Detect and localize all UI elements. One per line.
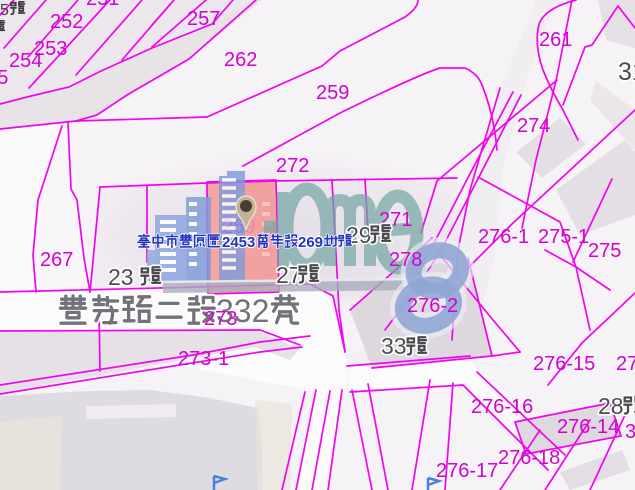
- svg-text:267: 267: [40, 249, 73, 271]
- svg-text:269: 269: [298, 234, 323, 251]
- svg-text:5: 5: [0, 2, 9, 19]
- svg-text:251: 251: [86, 0, 119, 10]
- svg-text:31: 31: [618, 58, 635, 86]
- svg-text:261: 261: [539, 29, 572, 51]
- svg-text:252: 252: [50, 11, 83, 33]
- svg-text:273-1: 273-1: [178, 348, 229, 370]
- svg-text:2453: 2453: [222, 234, 255, 251]
- svg-text:28: 28: [598, 393, 624, 419]
- svg-text:276-14: 276-14: [557, 416, 619, 438]
- svg-text:276-18: 276-18: [498, 447, 560, 469]
- svg-text:259: 259: [316, 82, 349, 104]
- svg-text:255: 255: [0, 67, 8, 89]
- svg-text:276-13: 276-13: [616, 353, 635, 375]
- svg-text:33: 33: [381, 333, 407, 359]
- svg-text:276-1: 276-1: [478, 226, 529, 248]
- svg-text:273: 273: [204, 308, 237, 330]
- svg-text:23: 23: [108, 264, 134, 290]
- svg-text:275-1: 275-1: [538, 226, 589, 248]
- svg-text:254: 254: [9, 50, 42, 72]
- svg-text:257: 257: [187, 8, 220, 30]
- svg-text:276-17: 276-17: [436, 460, 498, 482]
- svg-text:276-2: 276-2: [407, 295, 458, 317]
- svg-text:276-16: 276-16: [471, 396, 533, 418]
- svg-text:278: 278: [389, 249, 422, 271]
- svg-text:275: 275: [588, 240, 621, 262]
- svg-text:272: 272: [276, 155, 309, 177]
- svg-text:3: 3: [625, 421, 635, 443]
- svg-text:274: 274: [517, 115, 550, 137]
- svg-text:276-15: 276-15: [533, 353, 595, 375]
- svg-text:262: 262: [224, 49, 257, 71]
